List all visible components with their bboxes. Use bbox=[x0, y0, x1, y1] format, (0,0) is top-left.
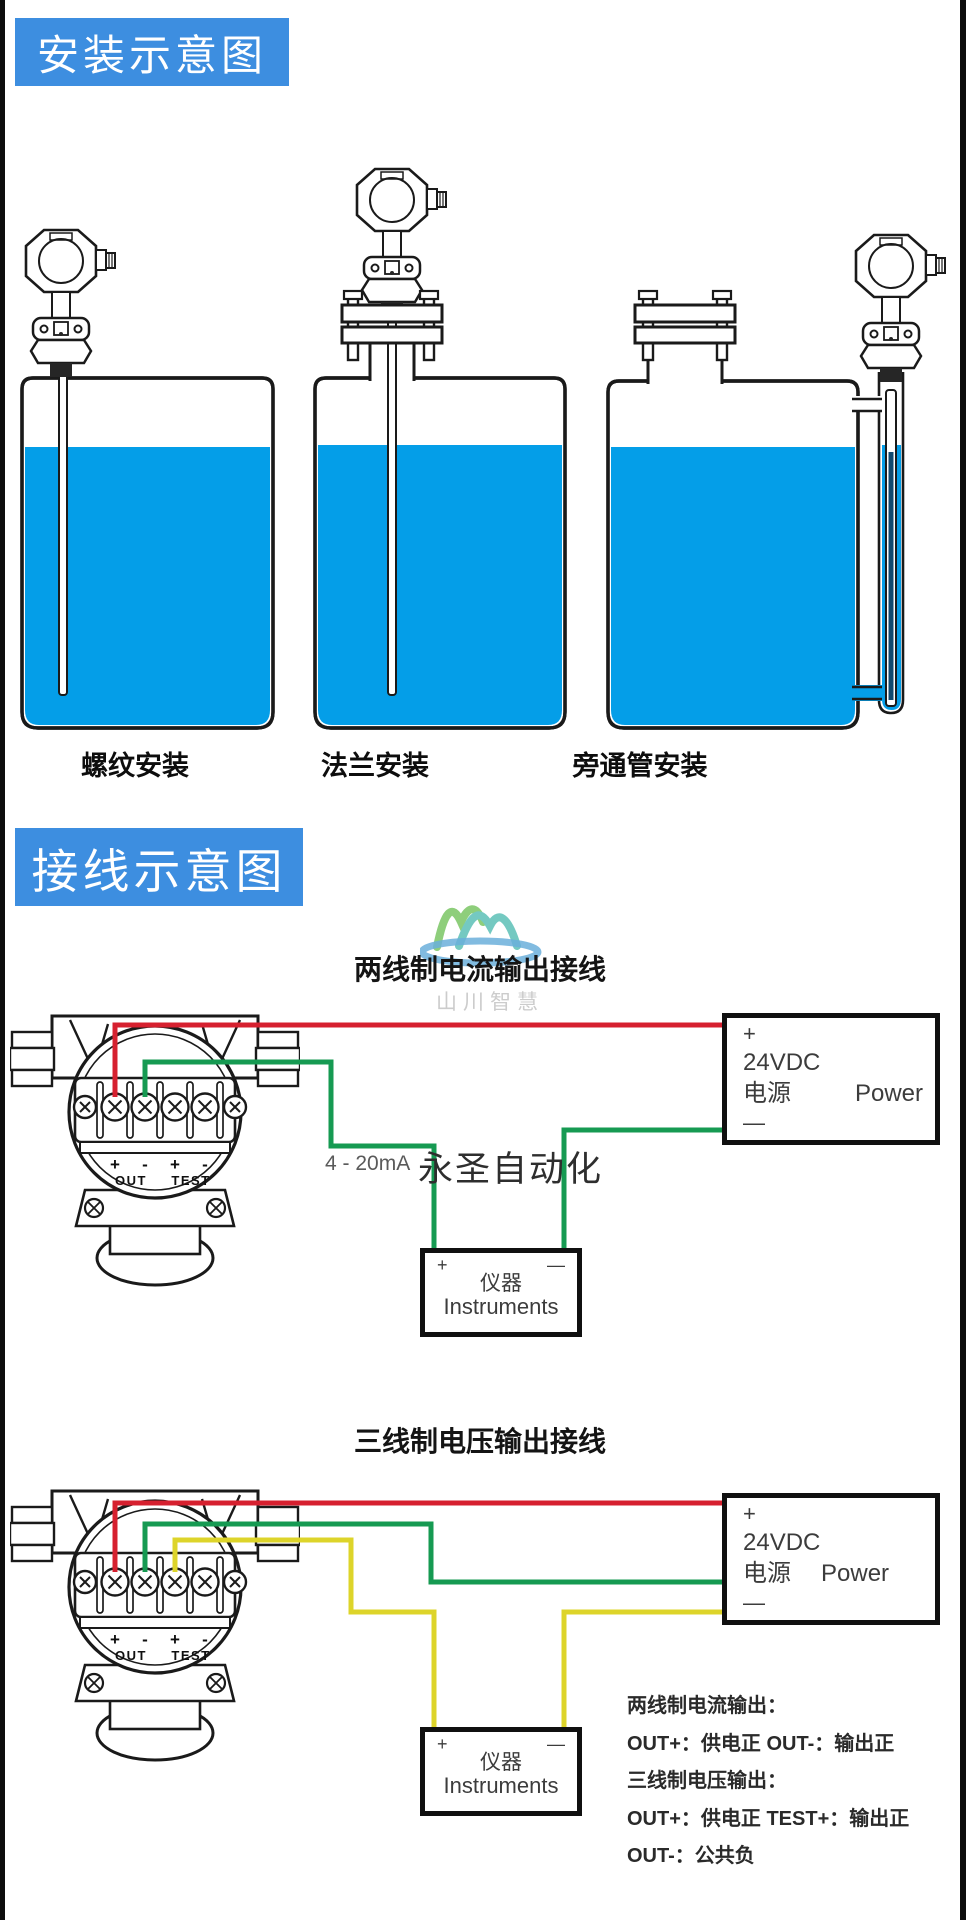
instrument-label-en: Instruments bbox=[425, 1774, 577, 1798]
instrument-box-1: + — 仪器 Instruments bbox=[420, 1248, 582, 1337]
note-line: OUT+：供电正 TEST+：输出正 bbox=[627, 1801, 963, 1839]
power-plus: + bbox=[743, 1503, 923, 1525]
terminal-minus-label: - bbox=[136, 1155, 154, 1175]
terminal-plus-label: + bbox=[166, 1155, 184, 1175]
power-plus: + bbox=[743, 1023, 923, 1045]
power-voltage: 24VDC bbox=[743, 1051, 923, 1075]
instrument-label-cn: 仪器 bbox=[425, 1272, 577, 1295]
mount-label-bypass: 旁通管安装 bbox=[540, 744, 740, 783]
power-label-en: Power bbox=[855, 1082, 923, 1106]
wiring-title-badge: 接线示意图 bbox=[15, 828, 303, 906]
wiring-notes: 两线制电流输出： OUT+：供电正 OUT-：输出正 三线制电压输出： OUT+… bbox=[627, 1688, 963, 1876]
mount-label-flange: 法兰安装 bbox=[295, 744, 455, 783]
installation-title-badge: 安装示意图 bbox=[15, 18, 289, 86]
terminal-minus-label: - bbox=[136, 1630, 154, 1650]
power-minus: — bbox=[743, 1112, 923, 1134]
note-line: OUT-：公共负 bbox=[627, 1838, 963, 1876]
note-line: OUT+：供电正 OUT-：输出正 bbox=[627, 1726, 963, 1764]
signal-range-label: 4 - 20mA bbox=[325, 1152, 410, 1176]
diagram2-heading: 三线制电压输出接线 bbox=[280, 1420, 680, 1460]
terminal-out-label: OUT bbox=[112, 1173, 150, 1188]
brand-watermark-text: 永圣自动化 bbox=[418, 1141, 603, 1192]
power-label-cn: 电源 bbox=[743, 1562, 791, 1586]
diagram1-heading: 两线制电流输出接线 bbox=[280, 948, 680, 988]
instrument-box-2: + — 仪器 Instruments bbox=[420, 1727, 582, 1816]
terminal-minus-label: - bbox=[196, 1630, 214, 1650]
flange-assembly bbox=[635, 291, 735, 360]
terminal-plus-label: + bbox=[166, 1630, 184, 1650]
terminal-test-label: TEST bbox=[168, 1648, 214, 1663]
installation-diagram bbox=[0, 140, 966, 800]
power-box-2: + 24VDC 电源 Power — bbox=[722, 1493, 940, 1625]
instrument-label-cn: 仪器 bbox=[425, 1751, 577, 1774]
terminal-plus-label: + bbox=[106, 1155, 124, 1175]
power-label-en: Power bbox=[821, 1562, 889, 1586]
note-line: 三线制电压输出： bbox=[627, 1763, 963, 1801]
page: 安装示意图 bbox=[0, 0, 966, 1920]
terminal-out-label: OUT bbox=[112, 1648, 150, 1663]
power-label-cn: 电源 bbox=[743, 1082, 791, 1106]
terminal-test-label: TEST bbox=[168, 1173, 214, 1188]
transmitter-icon bbox=[26, 230, 115, 377]
tank-bypass-figure bbox=[608, 343, 903, 728]
terminal-minus-label: - bbox=[196, 1155, 214, 1175]
tank-thread-figure bbox=[22, 360, 273, 728]
terminal-plus-label: + bbox=[106, 1630, 124, 1650]
power-minus: — bbox=[743, 1592, 923, 1614]
tank-flange-figure bbox=[315, 300, 565, 728]
transmitter-icon bbox=[856, 235, 945, 382]
note-line: 两线制电流输出： bbox=[627, 1688, 963, 1726]
instrument-label-en: Instruments bbox=[425, 1295, 577, 1319]
power-box-1: + 24VDC 电源 Power — bbox=[722, 1013, 940, 1145]
mount-label-thread: 螺纹安装 bbox=[50, 744, 220, 783]
wire-green bbox=[145, 1524, 722, 1582]
power-voltage: 24VDC bbox=[743, 1531, 923, 1555]
